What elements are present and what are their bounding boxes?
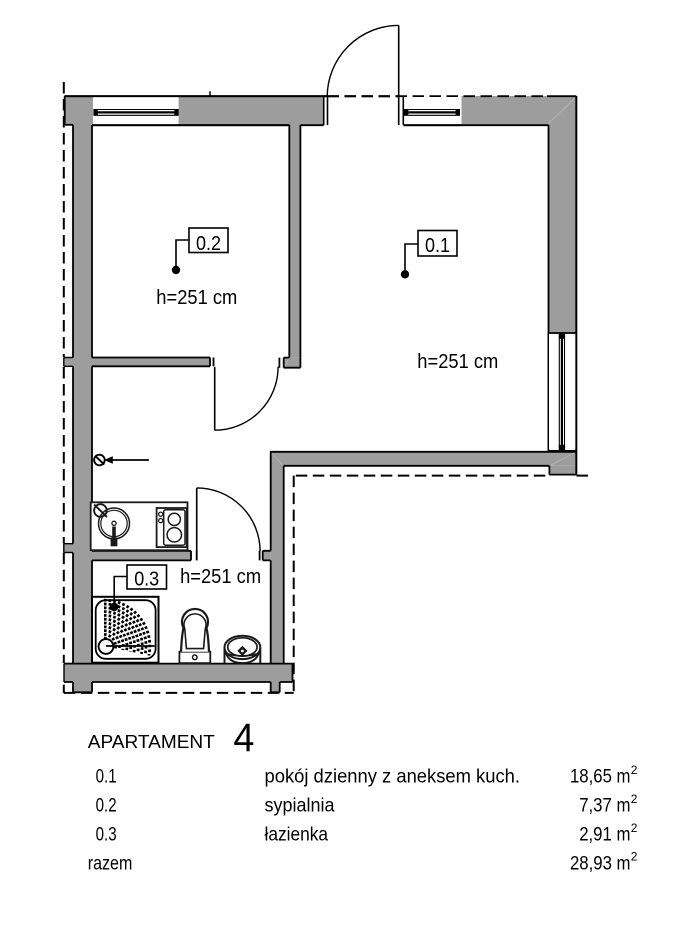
svg-text:7,37 m: 7,37 m <box>579 795 630 817</box>
svg-text:2: 2 <box>631 850 638 864</box>
svg-text:0.3: 0.3 <box>96 824 117 846</box>
svg-text:0.1: 0.1 <box>425 235 450 257</box>
svg-text:2: 2 <box>631 763 638 777</box>
svg-text:łazienka: łazienka <box>265 824 329 846</box>
svg-text:2: 2 <box>631 821 638 835</box>
svg-text:APARTAMENT: APARTAMENT <box>88 731 215 752</box>
svg-text:4: 4 <box>233 716 254 760</box>
svg-text:pokój dzienny z aneksem kuch.: pokój dzienny z aneksem kuch. <box>265 766 521 788</box>
svg-text:0.3: 0.3 <box>134 569 159 591</box>
svg-text:h=251 cm: h=251 cm <box>156 287 237 309</box>
svg-text:sypialnia: sypialnia <box>265 795 335 817</box>
svg-text:h=251 cm: h=251 cm <box>180 566 261 588</box>
svg-text:18,65 m: 18,65 m <box>570 766 631 788</box>
svg-text:h=251 cm: h=251 cm <box>417 351 498 373</box>
svg-text:28,93 m: 28,93 m <box>570 852 631 874</box>
svg-text:0.2: 0.2 <box>196 233 221 255</box>
svg-text:0.2: 0.2 <box>96 795 117 817</box>
svg-text:0.1: 0.1 <box>96 766 117 788</box>
svg-text:2,91 m: 2,91 m <box>579 824 630 846</box>
svg-text:razem: razem <box>88 852 133 874</box>
svg-text:2: 2 <box>631 792 638 806</box>
